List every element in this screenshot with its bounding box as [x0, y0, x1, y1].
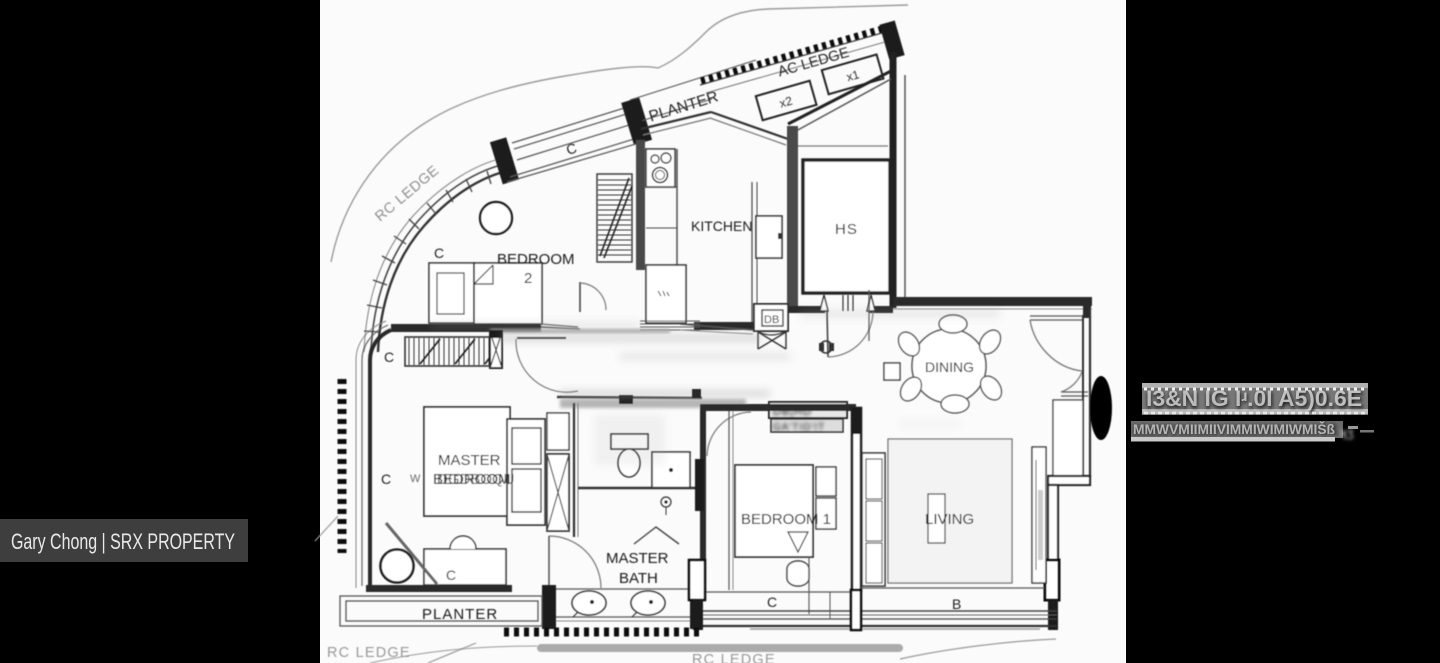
svg-text:C: C	[767, 594, 777, 610]
svg-text:PLANTER: PLANTER	[422, 606, 498, 623]
svg-text:DINING: DINING	[925, 359, 974, 375]
svg-text:B: B	[952, 596, 961, 612]
svg-text:RC LEDGE: RC LEDGE	[692, 652, 776, 663]
svg-text:RC LEDGE: RC LEDGE	[327, 645, 411, 661]
svg-text:2: 2	[524, 270, 532, 287]
svg-text:I3&N IG Iʴ.0I A5)0.6E: I3&N IG Iʴ.0I A5)0.6E	[1146, 386, 1362, 411]
svg-text:DB: DB	[764, 314, 779, 326]
svg-text:C: C	[446, 567, 456, 583]
svg-text:C: C	[434, 245, 444, 261]
svg-text:C: C	[381, 471, 391, 487]
svg-text:BEDROOM: BEDROOM	[497, 251, 575, 268]
svg-text:MASTER: MASTER	[606, 550, 669, 567]
svg-text:BEDROOM 1: BEDROOM 1	[741, 511, 831, 528]
svg-text:DGDBOQU: DGDBOQU	[437, 471, 515, 488]
svg-text:W: W	[410, 473, 421, 485]
svg-text:MASTER: MASTER	[438, 452, 501, 469]
svg-text:MMWVMIIMIIVIMMIWIMIWMIŠß: MMWVMIIMIIVIMMIWIMIWMIŠß	[1133, 420, 1335, 437]
svg-text:Gary Chong | SRX PROPERTY: Gary Chong | SRX PROPERTY	[11, 529, 235, 554]
svg-text:GA'TID'IT: GA'TID'IT	[773, 422, 825, 433]
svg-text:HS: HS	[835, 221, 858, 238]
svg-text:C: C	[384, 349, 394, 365]
svg-text:LIVING: LIVING	[925, 511, 974, 528]
svg-text:BATH: BATH	[619, 570, 658, 587]
svg-text:KITCHEN: KITCHEN	[691, 218, 752, 234]
